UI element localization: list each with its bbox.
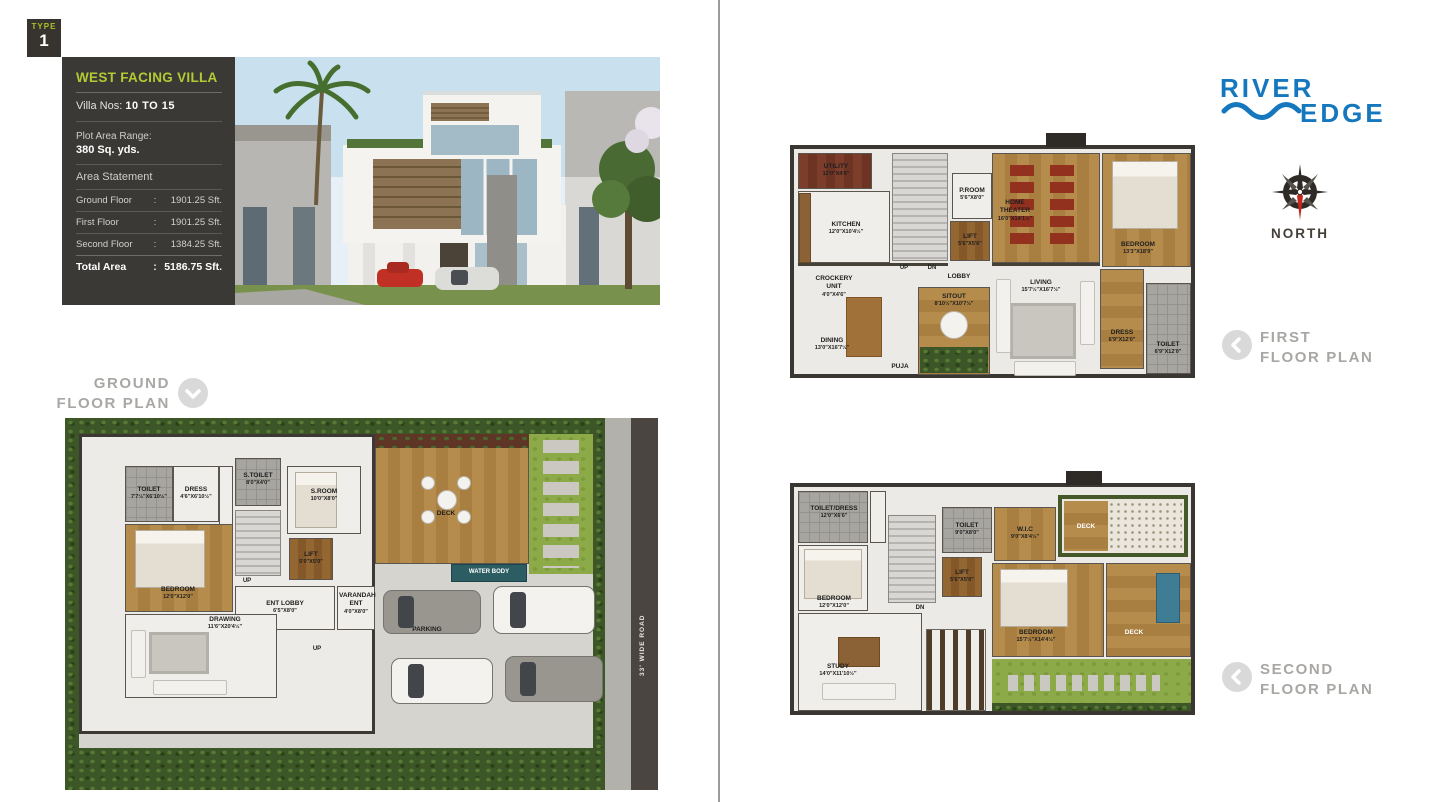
room-label-bedroom1: BEDROOM12'0"X12'0" [817, 595, 851, 611]
room-label-toilet-dress: TOILET/DRESS12'0"X6'6" [810, 505, 857, 521]
room-label-toilet: TOILET6'9"X12'0" [1155, 341, 1182, 357]
room-label-home-theater: HOME THEATER16'0"X14'1½" [997, 199, 1033, 223]
chimney [1066, 471, 1102, 485]
sofa [131, 630, 146, 678]
label-lobby: LOBBY [948, 273, 971, 281]
first-floor-plan: UTILITY12'0"X4'6" KITCHEN12'0"X10'4½" UP… [790, 145, 1195, 378]
foliage-top [65, 418, 605, 434]
second-closet [870, 491, 886, 543]
road [605, 418, 631, 790]
wall [798, 263, 948, 266]
plunge-pool [1156, 573, 1180, 623]
label-up: UP [900, 265, 908, 273]
room-label-dress: DRESS4'6"X6'10½" [180, 486, 211, 502]
first-dress [1100, 269, 1144, 369]
room-label-sitout: SITOUT8'10½"X10'7½" [934, 293, 973, 309]
stepping-stones [1008, 675, 1160, 691]
room-label-bedroom2: BEDROOM15'7½"X14'4½" [1016, 629, 1055, 645]
area-row-colon: : [148, 239, 162, 250]
villa-numbers-label: Villa Nos: [76, 100, 122, 112]
car [391, 658, 493, 704]
compass: NORTH [1258, 162, 1342, 241]
room-label-ent-lobby: ENT LOBBY6'5"X8'0" [266, 600, 304, 616]
north-label: NORTH [1258, 226, 1342, 241]
road-label: 33' WIDE ROAD [639, 536, 646, 676]
villa-title: WEST FACING VILLA [76, 70, 222, 85]
area-row-label: Second Floor [76, 239, 148, 250]
stepping-stones [543, 440, 579, 568]
room-label-bedroom: BEDROOM12'0"X12'0" [161, 586, 195, 602]
ground-floor-plan: 33' WIDE ROAD [65, 418, 658, 790]
area-row-colon: : [148, 195, 162, 206]
ground-plan-title: GROUND FLOOR PLAN [20, 374, 170, 413]
pergola [926, 629, 986, 711]
room-label-lift: LIFT5'6"X5'0" [950, 569, 974, 585]
theater-recliners [1050, 165, 1074, 249]
hedge [992, 703, 1191, 711]
chevron-down-icon [178, 378, 208, 408]
room-label-study: STUDY14'0"X11'10½" [819, 663, 856, 679]
area-row-label: Ground Floor [76, 195, 148, 206]
first-plan-title-line1: FIRST [1260, 329, 1311, 346]
room-label-deck-top: DECK [1077, 523, 1095, 531]
label-dn: DN [928, 265, 937, 273]
label-puja: PUJA [891, 363, 908, 371]
first-toilet [1146, 283, 1191, 374]
deck-chair [457, 476, 471, 490]
ground-plan-title-line2: FLOOR PLAN [57, 395, 171, 412]
wall [992, 263, 1100, 266]
room-label-deck-right: DECK [1125, 629, 1143, 637]
room-label-lift: LIFT5'6"X5'6" [958, 233, 982, 249]
area-row-ground: Ground Floor : 1901.25 Sft. [76, 190, 222, 211]
first-plan-title-line2: FLOOR PLAN [1260, 349, 1374, 366]
room-label-toilet: TOILET9'0"X8'0" [955, 522, 979, 538]
room-label-lift: LIFT5'0"X5'0" [299, 551, 323, 567]
area-row-label: First Floor [76, 217, 148, 228]
deck-table [437, 490, 457, 510]
deck-chair [421, 476, 435, 490]
total-colon: : [148, 261, 162, 273]
label-dn: DN [916, 605, 925, 613]
total-value: 5186.75 Sft. [162, 261, 222, 273]
type-badge-label: TYPE [27, 23, 61, 31]
living-rug [1010, 303, 1076, 359]
car [493, 586, 595, 634]
bed [135, 530, 205, 588]
first-stairs [892, 153, 948, 261]
ground-stairs [235, 510, 281, 576]
total-label: Total Area [76, 261, 148, 273]
second-plan-title: SECOND FLOOR PLAN [1260, 660, 1374, 699]
deck-planter [375, 434, 529, 448]
second-plan-title-line2: FLOOR PLAN [1260, 681, 1374, 698]
villa-rendering-art [235, 57, 660, 305]
room-label-sroom: S.ROOM10'0"X8'0" [311, 488, 338, 504]
area-row-value: 1384.25 Sft. [162, 239, 222, 250]
area-row-total: Total Area : 5186.75 Sft. [76, 256, 222, 278]
foliage-bottom [65, 748, 605, 790]
area-row-colon: : [148, 217, 162, 228]
bed [1112, 161, 1178, 229]
bed [804, 549, 862, 599]
info-panel: WEST FACING VILLA Villa Nos: 10 TO 15 Pl… [62, 57, 235, 305]
sofa [153, 680, 227, 695]
brand-logo-art: RIVER EDGE [1218, 70, 1383, 130]
label-water-body: WATER BODY [469, 569, 509, 577]
sitout-table [940, 311, 968, 339]
room-label-proom: P.ROOM5'6"X8'0" [959, 187, 985, 203]
villa-rendering [235, 57, 660, 305]
foliage-left [65, 418, 79, 790]
room-label-toilet: TOILET7'7½"X6'10½" [131, 486, 167, 502]
plot-area-label: Plot Area Range: [76, 122, 222, 142]
brochure-page: TYPE 1 WEST FACING VILLA Villa Nos: 10 T… [0, 0, 1437, 802]
chevron-left-icon [1222, 330, 1252, 360]
villa-numbers-value: 10 TO 15 [125, 100, 175, 112]
room-label-deck: DECK [437, 510, 455, 518]
chevron-left-icon [1222, 662, 1252, 692]
type-badge-number: 1 [27, 31, 61, 51]
room-label-drawing: DRAWING11'6"X20'4½" [208, 616, 242, 632]
label-up: UP [243, 578, 251, 586]
label-up: UP [313, 646, 321, 654]
brand-word-edge: EDGE [1300, 98, 1383, 128]
sofa [822, 683, 896, 700]
sofa [1014, 361, 1076, 376]
sitout-plants [920, 347, 988, 373]
room-label-stoilet: S.TOILET8'0"X4'0" [243, 472, 272, 488]
chimney [1046, 133, 1086, 147]
room-label-varandah: VARANDAH ENT4'0"X8'0" [339, 592, 373, 616]
ground-plan-title-line1: GROUND [94, 375, 170, 392]
villa-numbers: Villa Nos: 10 TO 15 [76, 93, 222, 121]
room-label-utility: UTILITY12'0"X4'6" [823, 163, 850, 179]
room-label-dress: DRESS6'9"X12'0" [1109, 329, 1136, 345]
area-row-first: First Floor : 1901.25 Sft. [76, 212, 222, 233]
room-label-crockery: CROCKERY UNIT4'0"X4'6" [813, 275, 855, 299]
compass-icon [1268, 162, 1332, 224]
sofa [1080, 281, 1095, 345]
vertical-divider [718, 0, 720, 802]
area-row-value: 1901.25 Sft. [162, 195, 222, 206]
room-label-bedroom: BEDROOM13'3"X18'9" [1121, 241, 1155, 257]
area-statement-heading: Area Statement [76, 165, 222, 189]
bed [1000, 569, 1068, 627]
second-stairs [888, 515, 936, 603]
deck-chair [457, 510, 471, 524]
room-label-dining: DINING13'0"X16'7½" [815, 337, 849, 353]
room-label-living: LIVING15'7½"X16'7½" [1021, 279, 1060, 295]
label-parking: PARKING [412, 626, 442, 634]
plot-area-value: 380 Sq. yds. [76, 142, 222, 164]
car [505, 656, 603, 702]
wave-icon [1224, 105, 1299, 118]
rug [149, 632, 209, 674]
first-plan-title: FIRST FLOOR PLAN [1260, 328, 1374, 367]
type-badge: TYPE 1 [27, 19, 61, 57]
second-plan-title-line1: SECOND [1260, 661, 1334, 678]
room-label-kitchen: KITCHEN12'0"X10'4½" [829, 221, 863, 237]
second-deck-top-pebbles [1108, 501, 1182, 551]
sofa [996, 279, 1011, 353]
deck-chair [421, 510, 435, 524]
room-label-wic: W.I.C9'0"X8'4½" [1011, 526, 1039, 542]
brand-logo: RIVER EDGE [1218, 70, 1383, 130]
second-floor-plan: TOILET/DRESS12'0"X6'6" BEDROOM12'0"X12'0… [790, 483, 1195, 715]
kitchen-counter [799, 193, 811, 263]
dining-table [846, 297, 882, 357]
area-row-value: 1901.25 Sft. [162, 217, 222, 228]
area-row-second: Second Floor : 1384.25 Sft. [76, 234, 222, 255]
